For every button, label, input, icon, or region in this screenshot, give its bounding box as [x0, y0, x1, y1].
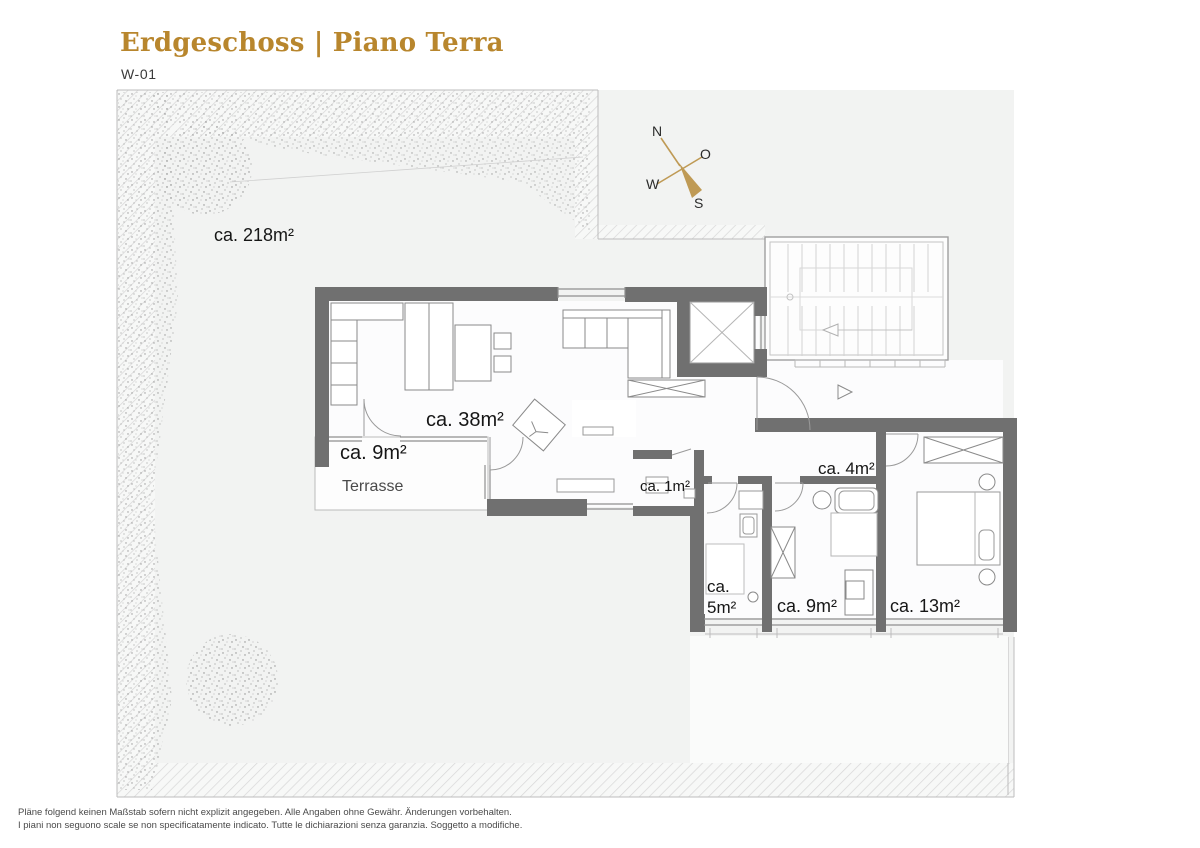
disclaimer: Pläne folgend keinen Maßstab sofern nich…: [18, 806, 522, 832]
floorplan-page: Erdgeschoss | Piano Terra W-01: [0, 0, 1200, 848]
terrace: ca. 9m² Terrasse: [315, 437, 488, 510]
chair: [494, 333, 511, 349]
terrace-name-label: Terrasse: [342, 478, 403, 495]
sideboard: [557, 479, 614, 492]
shelf: [583, 427, 613, 435]
terrace-area-label: ca. 9m²: [340, 442, 407, 464]
elevator: [690, 302, 754, 363]
garden-area-label: ca. 218m²: [214, 225, 294, 245]
dining-table: [455, 325, 491, 381]
stairwell: [765, 237, 948, 367]
pillow: [979, 530, 994, 560]
compass-o: O: [700, 146, 711, 162]
bed-single: [831, 513, 877, 556]
living-area-label: ca. 38m²: [426, 409, 504, 431]
compass-s: S: [694, 195, 703, 211]
page-title: Erdgeschoss | Piano Terra: [120, 28, 504, 58]
bath-large-area-label: ca. 4m²: [818, 459, 875, 478]
kitchen-island: [405, 303, 429, 390]
compass-w: W: [646, 176, 660, 192]
disclaimer-line-it: I piani non seguono scale se non specifi…: [18, 819, 522, 832]
floorplan-drawing: ca. 218m² ca. 9m² Terrasse: [0, 0, 1200, 848]
desk-chair: [846, 581, 864, 599]
bath-small-label-2: 5m²: [707, 598, 737, 617]
sink: [739, 491, 763, 509]
compass-n: N: [652, 123, 662, 139]
bush-top: [158, 121, 252, 215]
bedroom-small-area-label: ca. 9m²: [777, 596, 837, 616]
bath-small-label-1: ca.: [707, 577, 730, 596]
unit-label: W-01: [121, 66, 157, 82]
chair: [494, 356, 511, 372]
nightstand: [979, 474, 995, 490]
storage-area-label: ca. 1m²: [640, 478, 690, 495]
nightstand: [979, 569, 995, 585]
round-sink: [813, 491, 831, 509]
disclaimer-line-de: Pläne folgend keinen Maßstab sofern nich…: [18, 806, 522, 819]
storage-room: ca. 1m²: [640, 477, 695, 498]
bush-bottom: [186, 634, 278, 726]
tv-sideboard: [628, 380, 705, 397]
bedroom-large-area-label: ca. 13m²: [890, 596, 960, 616]
